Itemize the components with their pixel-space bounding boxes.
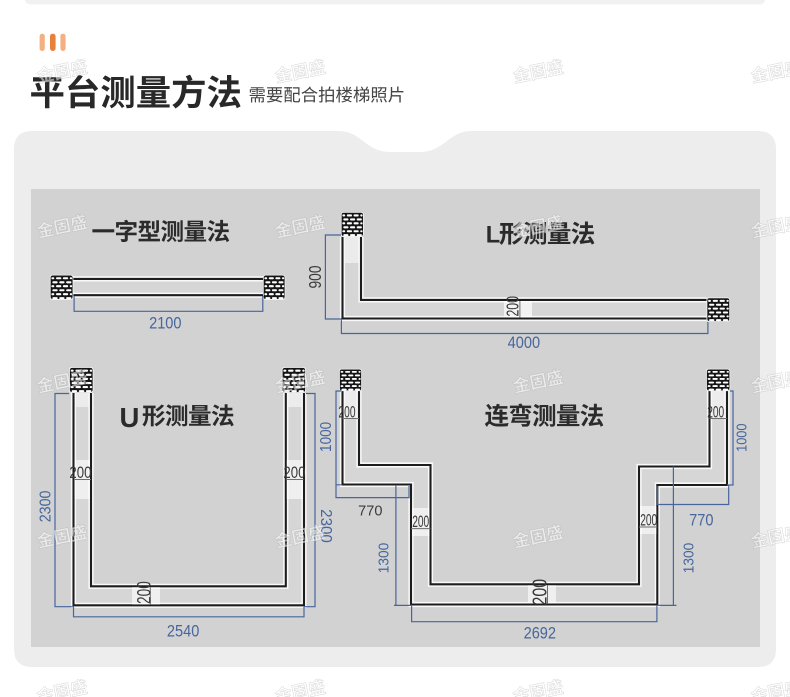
svg-text:200: 200 [283, 464, 305, 483]
svg-text:2540: 2540 [167, 623, 199, 641]
svg-text:1000: 1000 [318, 422, 335, 452]
svg-text:2100: 2100 [149, 315, 181, 333]
svg-text:1000: 1000 [734, 423, 750, 452]
svg-text:200: 200 [529, 579, 551, 606]
svg-text:200: 200 [707, 402, 724, 421]
svg-text:1300: 1300 [681, 543, 698, 574]
svg-text:4000: 4000 [508, 334, 540, 352]
svg-text:770: 770 [689, 512, 713, 530]
svg-text:200: 200 [640, 510, 657, 529]
svg-text:200: 200 [339, 402, 356, 421]
svg-text:2300: 2300 [37, 490, 55, 522]
svg-text:200: 200 [412, 511, 429, 530]
svg-text:900: 900 [307, 265, 326, 288]
svg-text:U: U [120, 402, 140, 433]
svg-text:2692: 2692 [524, 625, 556, 643]
svg-text:L: L [486, 223, 500, 249]
svg-text:1300: 1300 [376, 543, 393, 574]
svg-text:200: 200 [503, 296, 523, 316]
svg-text:200: 200 [69, 464, 91, 483]
svg-text:200: 200 [133, 581, 155, 604]
svg-text:770: 770 [358, 503, 382, 519]
